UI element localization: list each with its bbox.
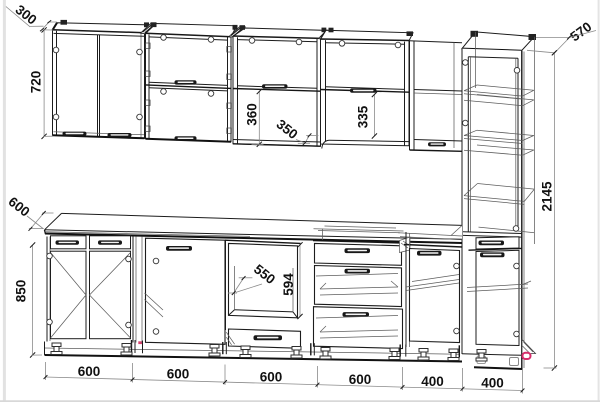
svg-text:850: 850 <box>14 280 29 303</box>
svg-text:400: 400 <box>481 376 504 391</box>
svg-text:400: 400 <box>421 374 444 389</box>
svg-text:360: 360 <box>245 103 260 126</box>
svg-text:335: 335 <box>356 105 371 128</box>
svg-text:600: 600 <box>167 367 190 382</box>
svg-text:600: 600 <box>78 364 101 379</box>
svg-text:720: 720 <box>29 71 44 94</box>
svg-text:2145: 2145 <box>540 181 555 212</box>
svg-text:594: 594 <box>281 273 296 296</box>
svg-text:600: 600 <box>349 372 372 387</box>
svg-text:600: 600 <box>260 369 283 384</box>
